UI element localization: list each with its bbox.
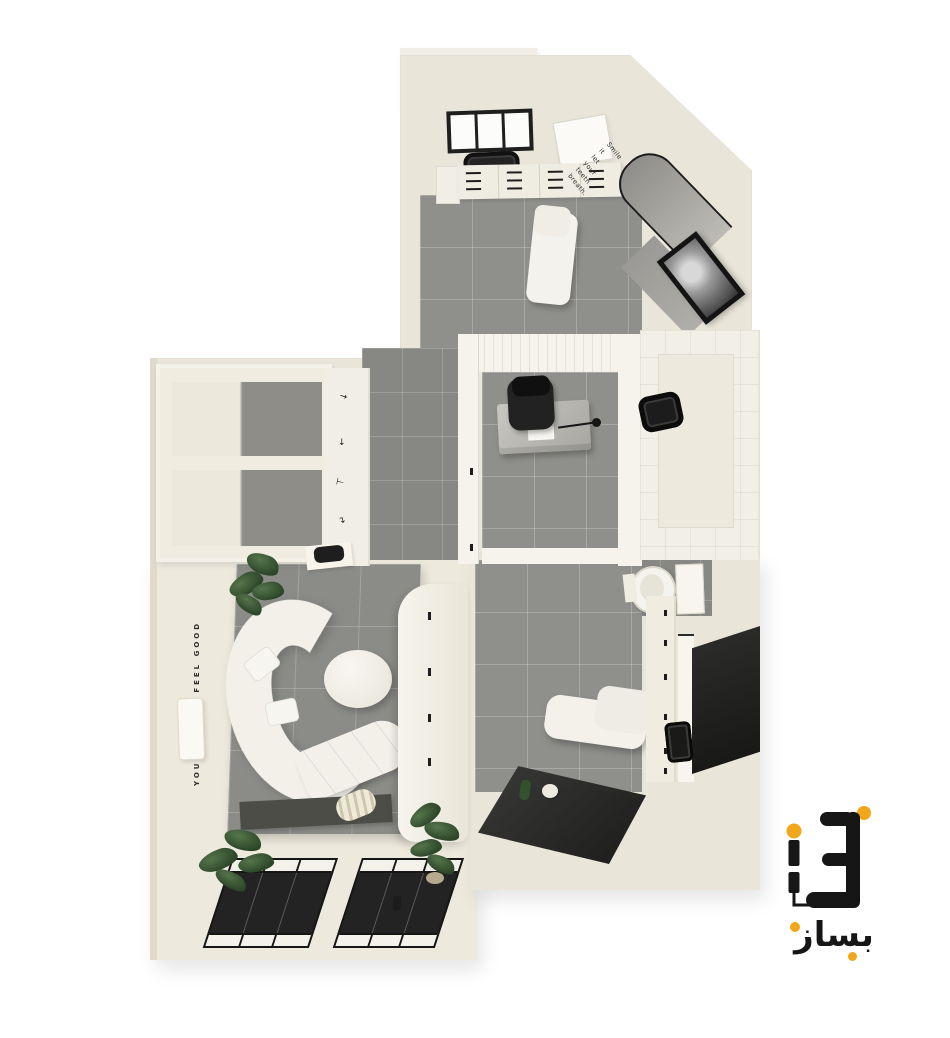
floor-treatment-right bbox=[475, 560, 642, 792]
brand-logo: بساز bbox=[778, 800, 888, 970]
cabinet-fridge-unit bbox=[436, 166, 460, 204]
window-pane bbox=[477, 114, 502, 149]
plant-icon bbox=[198, 820, 286, 898]
shelf-opening bbox=[172, 382, 322, 456]
wc-door bbox=[675, 564, 705, 615]
logo-orange-dot bbox=[848, 952, 857, 961]
office-chair-back bbox=[512, 375, 551, 397]
office-ceiling-slats bbox=[466, 334, 640, 372]
window-top-icon bbox=[446, 109, 533, 154]
cabinet-handle-icon bbox=[664, 714, 667, 720]
cabinet-drawers bbox=[458, 165, 500, 200]
office-left-wall bbox=[458, 334, 479, 564]
dark-glass-panel bbox=[692, 626, 760, 774]
plant-icon bbox=[404, 794, 466, 886]
floor-jar-icon bbox=[542, 784, 558, 798]
door-handle-icon bbox=[470, 544, 473, 551]
window-stopper-icon bbox=[393, 896, 401, 910]
desk-handle-icon bbox=[428, 758, 431, 766]
bathroom-recess bbox=[658, 354, 734, 528]
dental-chair-top-cushion bbox=[533, 204, 572, 238]
wall-mark-icon: ↓ bbox=[338, 438, 346, 448]
desk-handle-icon bbox=[428, 612, 431, 620]
logo-orange-dot bbox=[790, 922, 800, 932]
clinic-floorplan-render: Smile it let your teeth breath. ↘ ↓ ⊢ ↴ … bbox=[0, 0, 950, 1038]
window-pane bbox=[504, 113, 529, 148]
light-switch-panel bbox=[177, 698, 205, 761]
cabinet-handle-icon bbox=[664, 640, 667, 646]
office-right-wall bbox=[618, 334, 642, 566]
window-pane bbox=[450, 115, 475, 150]
coffee-table bbox=[324, 650, 392, 708]
office-bottom-wall bbox=[482, 548, 622, 564]
shelf-unit bbox=[156, 364, 332, 562]
window-sill bbox=[335, 933, 437, 946]
cabinet-handle-icon bbox=[664, 610, 667, 616]
desk-lamp-icon bbox=[592, 418, 601, 427]
cabinet-drawers bbox=[499, 164, 541, 199]
logo-orange-dot bbox=[787, 824, 802, 839]
window-sill bbox=[205, 933, 311, 946]
cabinet-handle-icon bbox=[664, 674, 667, 680]
desk-handle-icon bbox=[428, 714, 431, 722]
plant-pot-icon bbox=[426, 872, 444, 884]
dental-chair-right-back bbox=[593, 684, 653, 735]
floor-corridor bbox=[362, 348, 466, 560]
brand-logo-mark bbox=[778, 800, 888, 920]
wall-mark-icon: ↴ bbox=[337, 515, 346, 526]
door-handle-icon bbox=[470, 468, 473, 475]
plant-icon bbox=[226, 548, 290, 622]
cabinet-handle-icon bbox=[664, 768, 667, 774]
brand-wordmark: بساز bbox=[792, 918, 876, 952]
wall-intercom-icon bbox=[664, 721, 694, 763]
corner-sink-icon bbox=[313, 544, 345, 563]
desk-handle-icon bbox=[428, 668, 431, 676]
shelf-opening bbox=[172, 470, 322, 546]
